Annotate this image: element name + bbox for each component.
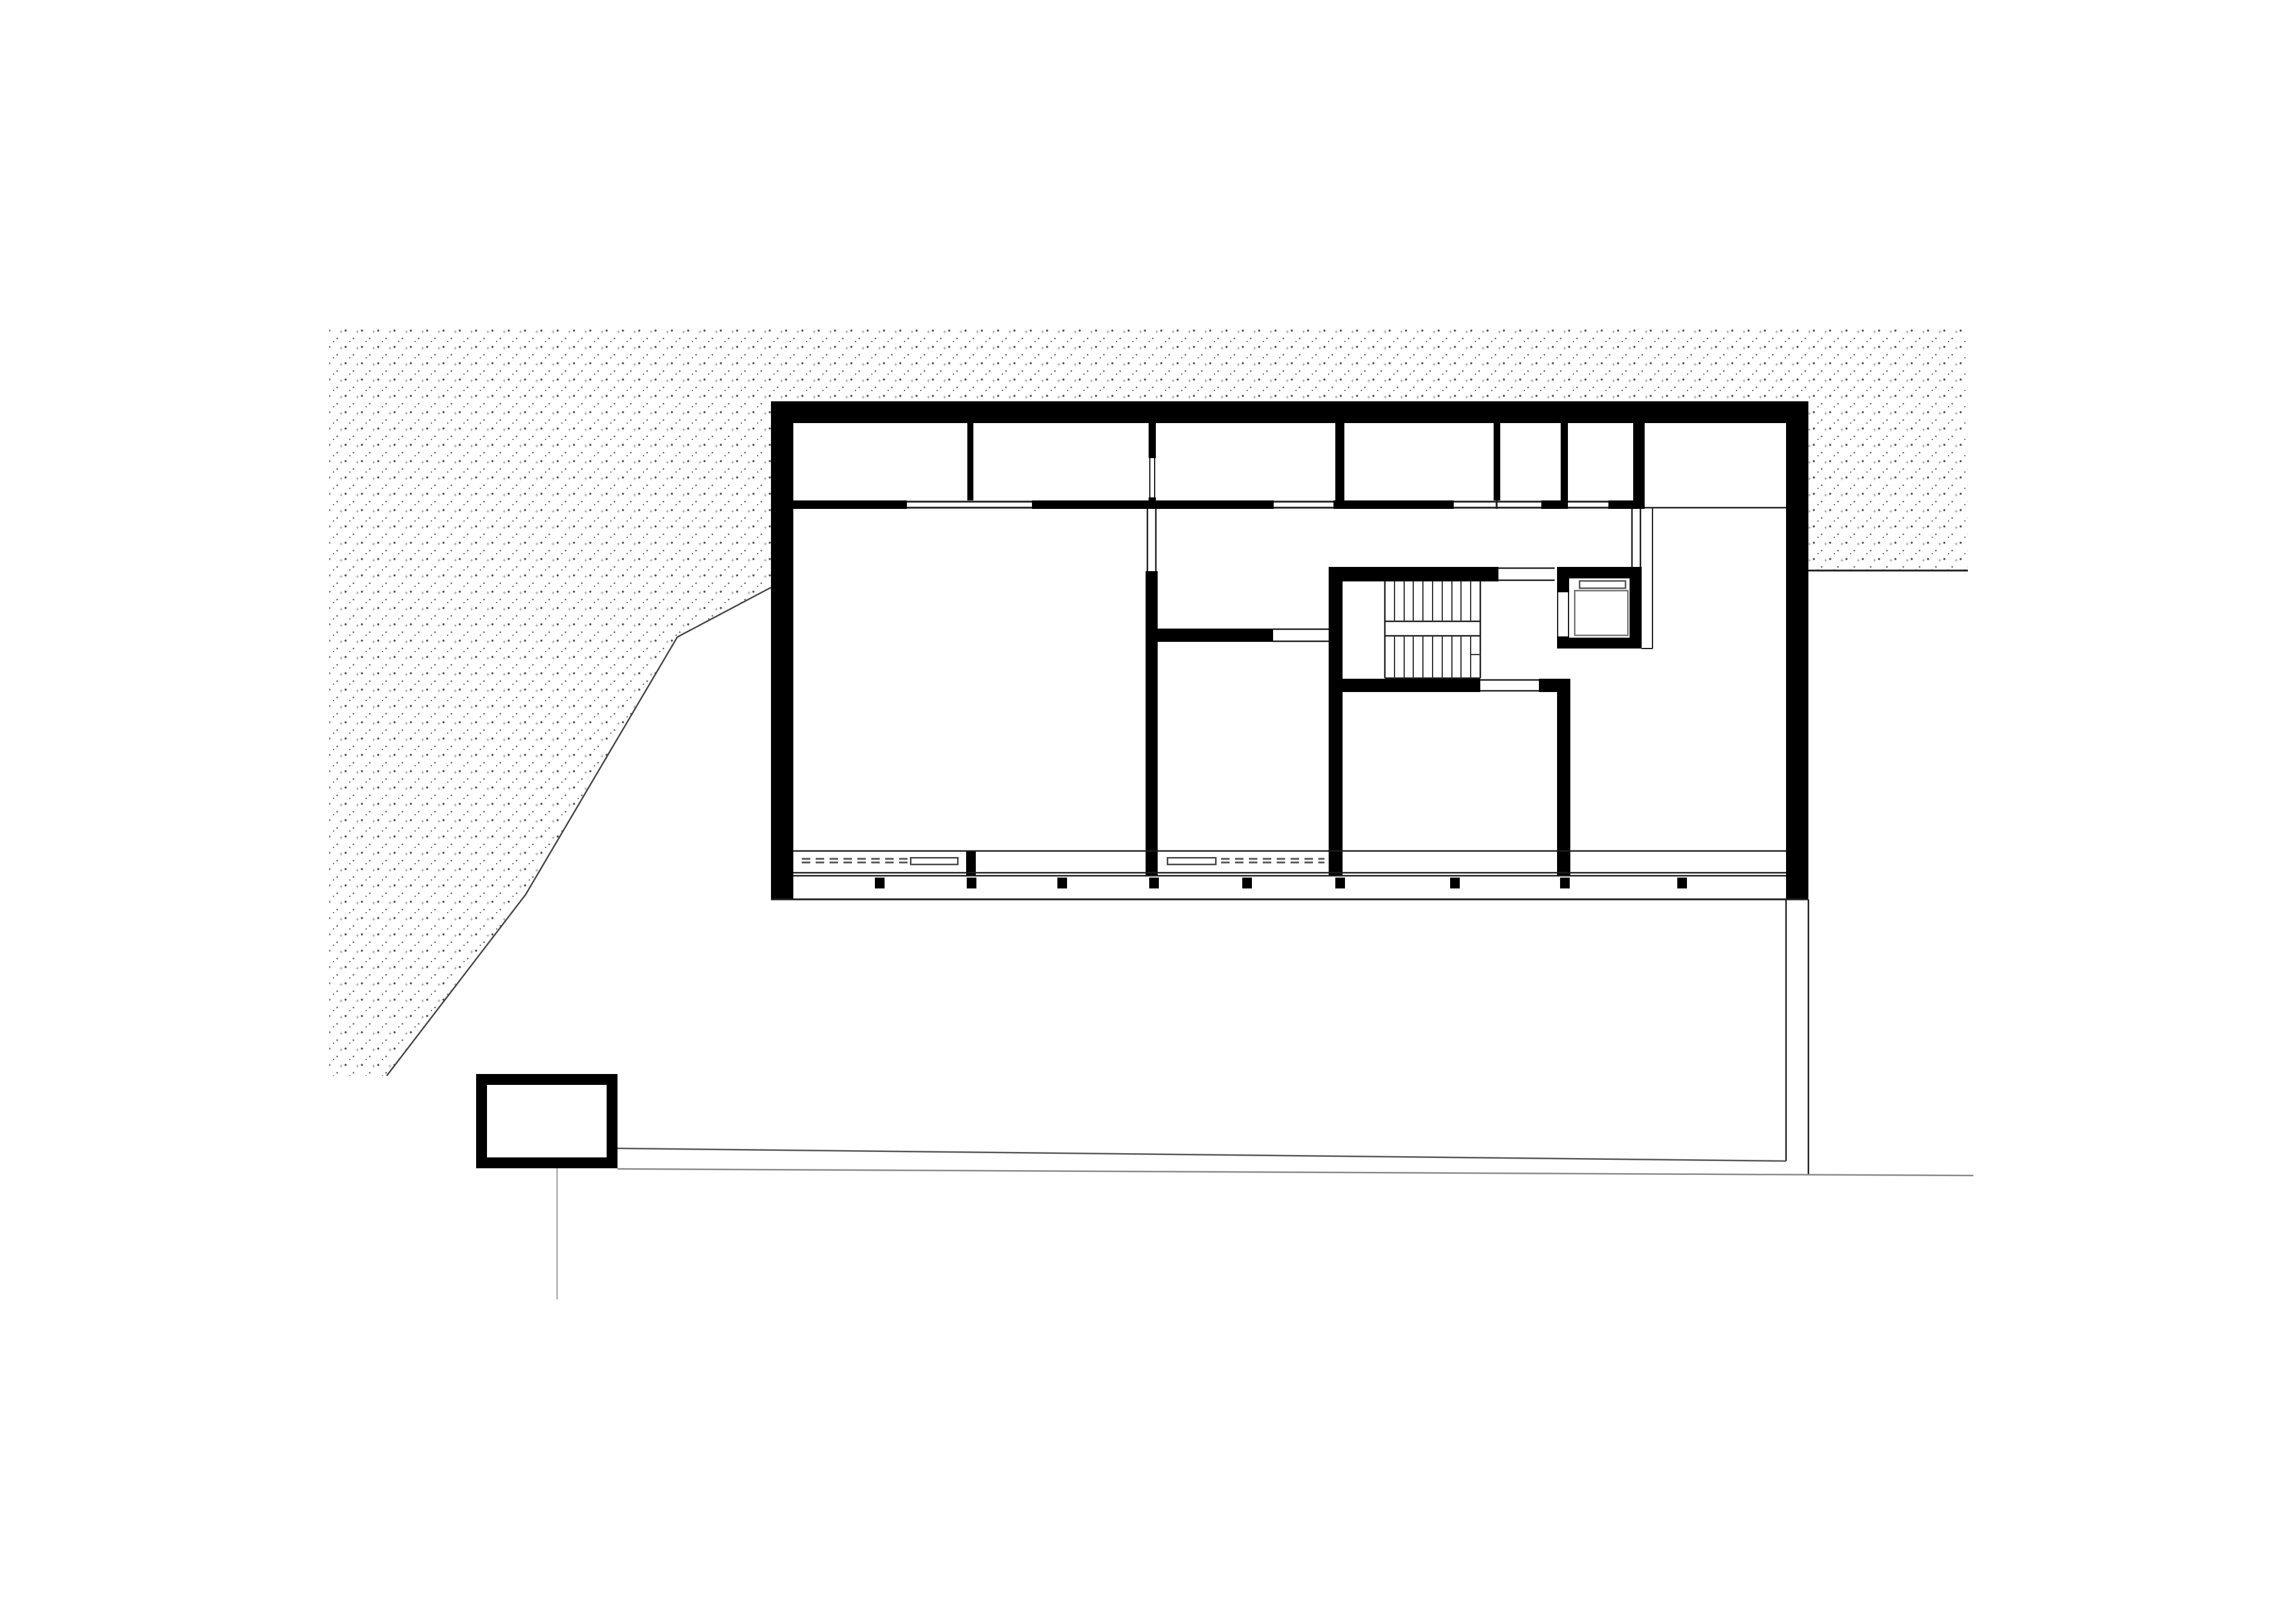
elevator-top-wall	[1557, 567, 1642, 578]
facade-post-1	[875, 878, 885, 888]
outer-wall-left	[771, 423, 793, 899]
corridor-wall-seg-1	[793, 500, 907, 509]
elevator-jamb-upper	[1557, 578, 1569, 592]
partition-room5-room6	[1561, 423, 1568, 500]
facade-post-2	[967, 878, 976, 888]
wall-living-middle	[1146, 571, 1158, 876]
garage-interior	[487, 1085, 607, 1157]
floor-plan-svg	[0, 0, 2296, 1624]
elevator-door-mechanism	[1579, 581, 1625, 588]
elevator-car	[1575, 590, 1628, 635]
facade-post-5	[1242, 878, 1252, 888]
corridor-wall-seg-2	[1032, 500, 1274, 509]
corridor-wall-seg-4	[1541, 500, 1568, 509]
stair-core-top-wall	[1329, 567, 1498, 581]
elevator-bottom-wall	[1557, 638, 1642, 649]
facade-post-8	[1560, 878, 1570, 888]
facade-post-3	[1057, 878, 1067, 888]
drawing-sheet	[0, 0, 2296, 1624]
corridor-wall-seg-3	[1333, 500, 1454, 509]
facade-post-4	[1149, 878, 1159, 888]
dashed-lines-layer	[802, 859, 1324, 862]
sliding-panel-middle	[1167, 858, 1216, 864]
partition-room2-room3-stub	[1149, 497, 1156, 500]
outer-wall-right	[1786, 423, 1808, 899]
facade-post-9	[1677, 878, 1687, 888]
kitchen-wall	[1146, 629, 1273, 642]
partition-room3-room4	[1335, 423, 1344, 500]
driveway-line-lower	[618, 1169, 1973, 1176]
wall-below-stair	[1557, 692, 1570, 876]
wall-middle-stairhall	[1329, 571, 1343, 876]
facade-post-6	[1335, 878, 1345, 888]
elevator-right-wall	[1630, 578, 1642, 638]
stair-core-bottom-wall-2	[1539, 679, 1570, 692]
partition-room6-room7	[1633, 423, 1645, 500]
facade-post-7	[1450, 878, 1460, 888]
corridor-wall-seg-5	[1608, 500, 1645, 509]
partition-room1-room2	[967, 423, 973, 500]
partition-room2-room3-upper	[1149, 423, 1156, 458]
stair-core-bottom-wall	[1343, 679, 1480, 692]
outer-wall-top	[771, 401, 1808, 423]
driveway-line-upper	[618, 1148, 1786, 1161]
sliding-panel-left	[911, 858, 958, 864]
facade-glazing-mullion	[966, 851, 976, 875]
partition-room4-room5	[1494, 423, 1500, 500]
